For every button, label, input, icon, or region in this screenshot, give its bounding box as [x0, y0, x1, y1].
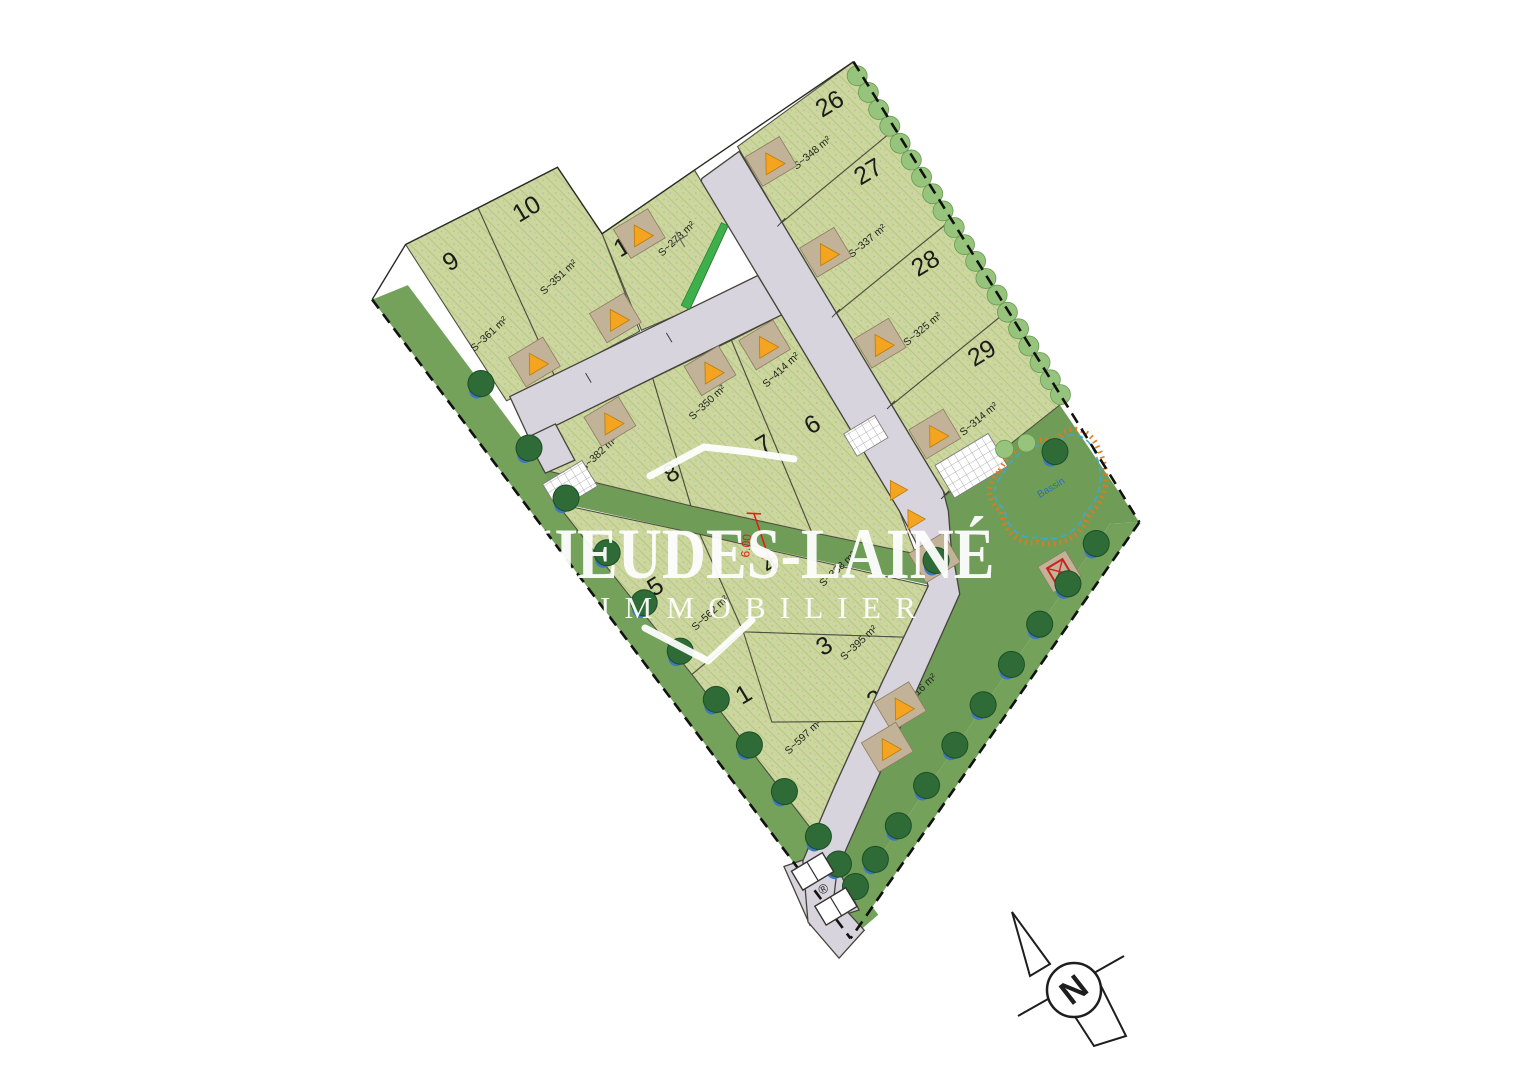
site-plan: 9 S~361 m² 10 S~351 m² 11 S~273 m² 26 S~… [357, 0, 1259, 990]
watermark-subtitle: IMMOBILIER [600, 590, 930, 625]
watermark-name: HEUDES-LAINÉ [530, 514, 995, 594]
north-arrow: N [1012, 912, 1126, 1046]
site-plan-canvas: 9 S~361 m² 10 S~351 m² 11 S~273 m² 26 S~… [0, 0, 1528, 1080]
